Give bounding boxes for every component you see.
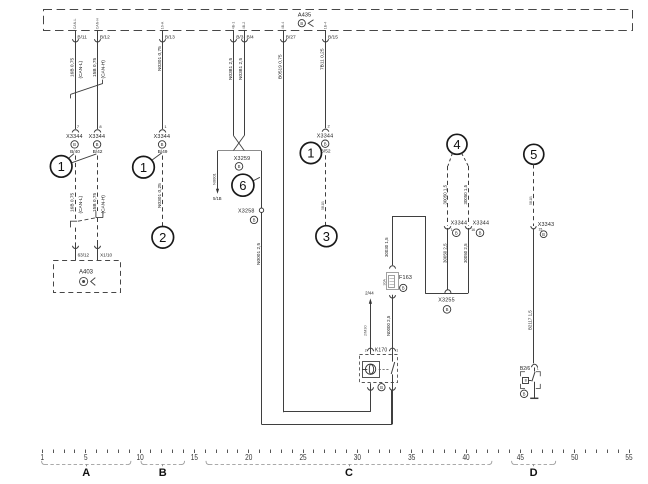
svg-text:10: 10 bbox=[136, 453, 144, 462]
svg-text:B: B bbox=[542, 232, 545, 237]
svg-text:B/15: B/15 bbox=[328, 35, 338, 41]
svg-text:B: B bbox=[73, 142, 76, 147]
svg-text:2/M30: 2/M30 bbox=[363, 325, 367, 336]
svg-text:B/40: B/40 bbox=[70, 149, 80, 155]
svg-text:X3259: X3259 bbox=[234, 156, 251, 162]
svg-text:B: B bbox=[455, 230, 458, 235]
svg-text:D: D bbox=[530, 467, 538, 479]
svg-text:45: 45 bbox=[517, 453, 525, 462]
svg-text:3: 3 bbox=[323, 229, 330, 244]
svg-text:5/1B: 5/1B bbox=[213, 196, 222, 201]
svg-text:N0000 2,5: N0000 2,5 bbox=[386, 315, 391, 336]
svg-text:F163: F163 bbox=[399, 275, 412, 281]
svg-text:B: B bbox=[253, 218, 256, 223]
svg-text:25: 25 bbox=[299, 453, 307, 462]
svg-text:X3344: X3344 bbox=[89, 134, 106, 140]
svg-text:1: 1 bbox=[140, 160, 147, 175]
svg-text:CAN-H: CAN-H bbox=[95, 18, 99, 30]
svg-text:(CAN-H): (CAN-H) bbox=[100, 60, 106, 79]
svg-text:30030 1,5: 30030 1,5 bbox=[384, 237, 389, 257]
svg-text:N0381 2,5: N0381 2,5 bbox=[228, 58, 234, 80]
svg-text:1: 1 bbox=[58, 159, 65, 174]
svg-text:(CAN-L): (CAN-L) bbox=[78, 61, 84, 79]
svg-text:4: 4 bbox=[453, 137, 460, 152]
svg-text:B: B bbox=[238, 164, 241, 169]
svg-text:16B 0,75: 16B 0,75 bbox=[69, 57, 75, 77]
svg-text:N0001: N0001 bbox=[212, 172, 217, 185]
svg-text:63/12: 63/12 bbox=[78, 252, 90, 257]
svg-text:15: 15 bbox=[191, 453, 199, 462]
svg-text:1: 1 bbox=[41, 453, 45, 462]
svg-text:X3344: X3344 bbox=[451, 221, 468, 227]
svg-text:B: B bbox=[479, 230, 482, 235]
svg-text:B: B bbox=[402, 286, 405, 291]
svg-text:5B1B: 5B1B bbox=[529, 196, 533, 205]
svg-text:B: B bbox=[446, 307, 449, 312]
svg-text:15B 0,75: 15B 0,75 bbox=[92, 192, 98, 212]
svg-text:B: B bbox=[300, 21, 303, 26]
svg-text:1: 1 bbox=[396, 349, 398, 353]
svg-text:B: B bbox=[96, 142, 99, 147]
svg-text:4B-4: 4B-4 bbox=[281, 22, 285, 30]
svg-text:B/12: B/12 bbox=[100, 35, 110, 41]
svg-text:X3344: X3344 bbox=[154, 134, 171, 140]
svg-text:30A: 30A bbox=[382, 279, 386, 286]
svg-text:15B 0,75: 15B 0,75 bbox=[92, 57, 98, 77]
svg-text:C: C bbox=[345, 467, 353, 479]
svg-text:16B 0,75: 16B 0,75 bbox=[69, 192, 75, 212]
svg-text:35: 35 bbox=[408, 453, 416, 462]
svg-text:B/3: B/3 bbox=[236, 35, 244, 41]
svg-text:K170: K170 bbox=[375, 348, 387, 354]
svg-text:B: B bbox=[380, 385, 383, 390]
svg-text:16: 16 bbox=[471, 228, 475, 232]
svg-text:CAN-L: CAN-L bbox=[73, 19, 77, 30]
svg-text:7B11 0,25: 7B11 0,25 bbox=[320, 48, 326, 70]
svg-text:55: 55 bbox=[625, 453, 633, 462]
svg-text:N0301 0,75: N0301 0,75 bbox=[157, 46, 163, 71]
svg-text:(CAN-L): (CAN-L) bbox=[78, 196, 84, 214]
svg-text:2: 2 bbox=[365, 349, 367, 353]
svg-text:30050 1,5: 30050 1,5 bbox=[463, 184, 468, 204]
svg-text:2/44: 2/44 bbox=[365, 290, 374, 295]
svg-text:X3344: X3344 bbox=[66, 134, 83, 140]
svg-text:(CAN-H): (CAN-H) bbox=[100, 195, 106, 214]
svg-text:4B-1: 4B-1 bbox=[232, 22, 236, 30]
svg-text:B: B bbox=[523, 391, 526, 396]
svg-text:X3255: X3255 bbox=[438, 298, 455, 304]
svg-text:5: 5 bbox=[84, 453, 88, 462]
svg-text:30050 1,5: 30050 1,5 bbox=[442, 184, 447, 204]
svg-text:A403: A403 bbox=[79, 269, 94, 275]
svg-text:B/42: B/42 bbox=[93, 149, 103, 155]
svg-text:B/11: B/11 bbox=[77, 35, 87, 41]
svg-text:X3344: X3344 bbox=[473, 221, 490, 227]
svg-text:40: 40 bbox=[462, 453, 470, 462]
svg-text:A: A bbox=[82, 467, 90, 479]
svg-text:16-A: 16-A bbox=[160, 21, 164, 29]
svg-text:X1/10: X1/10 bbox=[100, 252, 112, 257]
svg-text:A435: A435 bbox=[298, 13, 312, 19]
svg-text:1: 1 bbox=[537, 367, 539, 371]
svg-text:B: B bbox=[324, 141, 327, 146]
svg-text:N0001 2,5: N0001 2,5 bbox=[256, 243, 262, 265]
svg-text:4B-2: 4B-2 bbox=[242, 22, 246, 30]
svg-text:1B-4: 1B-4 bbox=[323, 22, 327, 30]
svg-text:30050 2,5: 30050 2,5 bbox=[463, 243, 468, 263]
svg-text:2: 2 bbox=[159, 230, 166, 245]
svg-text:30050 2,5: 30050 2,5 bbox=[442, 243, 447, 263]
svg-text:B2117 1,5: B2117 1,5 bbox=[527, 310, 532, 330]
svg-text:X3344: X3344 bbox=[317, 134, 334, 140]
svg-text:B/4: B/4 bbox=[247, 35, 255, 41]
svg-text:X3258: X3258 bbox=[238, 209, 255, 215]
svg-text:30: 30 bbox=[354, 453, 362, 462]
svg-text:B0519 0,75: B0519 0,75 bbox=[277, 54, 283, 79]
svg-text:B/49: B/49 bbox=[158, 149, 168, 155]
svg-text:6: 6 bbox=[239, 178, 246, 193]
svg-text:B/27: B/27 bbox=[286, 35, 296, 41]
svg-text:N0381 2,5: N0381 2,5 bbox=[238, 58, 244, 80]
svg-text:1: 1 bbox=[307, 146, 314, 161]
svg-text:20: 20 bbox=[245, 453, 253, 462]
svg-text:B/13: B/13 bbox=[165, 35, 175, 41]
svg-text:5: 5 bbox=[530, 147, 537, 162]
svg-text:N0301 0,25: N0301 0,25 bbox=[157, 183, 163, 208]
svg-text:B: B bbox=[161, 142, 164, 147]
svg-text:5B1B: 5B1B bbox=[321, 201, 325, 210]
svg-text:B: B bbox=[159, 467, 167, 479]
svg-text:50: 50 bbox=[571, 453, 579, 462]
